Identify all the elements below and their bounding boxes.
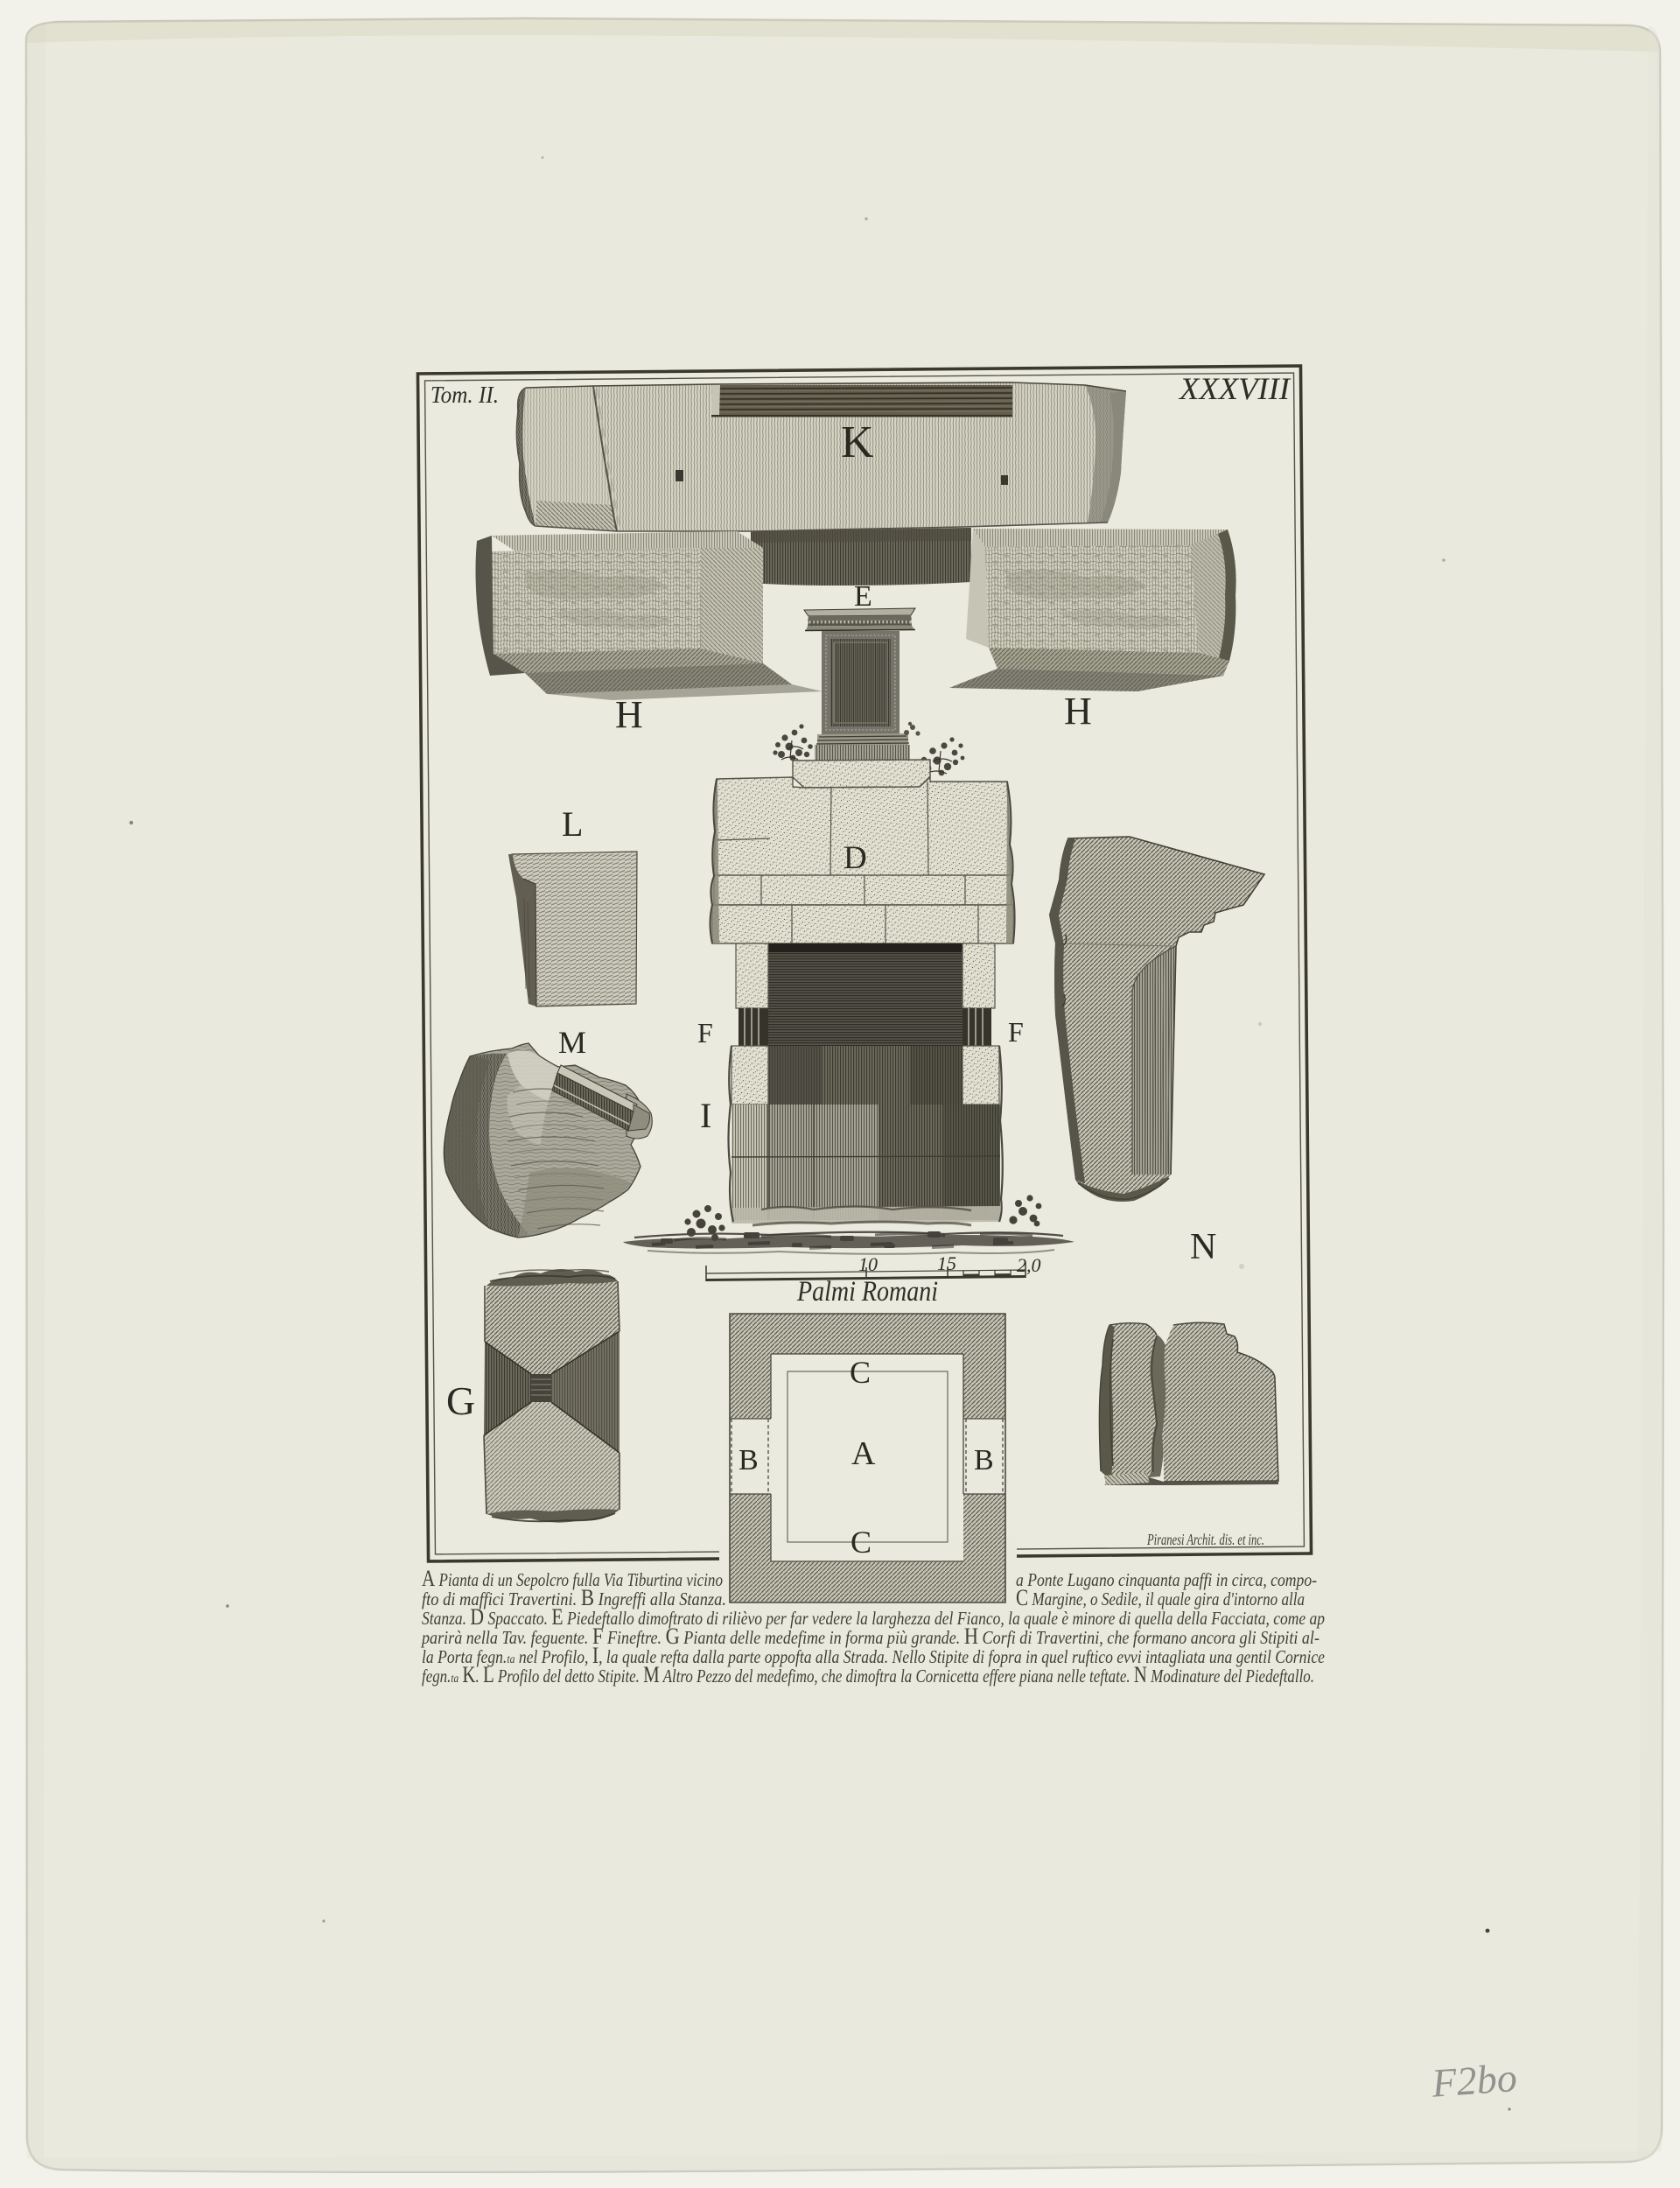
svg-text:F2bo: F2bo <box>1430 2055 1518 2106</box>
svg-text:F: F <box>697 1017 713 1048</box>
svg-text:la Porta fegn.ta nel Profilo,: la Porta fegn.ta nel Profilo, I, la qual… <box>422 1643 1325 1668</box>
svg-text:A: A <box>851 1435 876 1472</box>
svg-text:10: 10 <box>858 1253 878 1275</box>
svg-text:M: M <box>558 1025 586 1060</box>
svg-text:Tom. II.: Tom. II. <box>430 382 499 408</box>
svg-text:L: L <box>562 804 583 844</box>
svg-text:C: C <box>850 1525 871 1560</box>
svg-text:K: K <box>841 417 874 467</box>
svg-text:D: D <box>843 840 867 876</box>
svg-text:C Margine, o Sedile, il quale: C Margine, o Sedile, il quale gira d'int… <box>1016 1585 1305 1610</box>
svg-text:fegn.ta K. L Profilo del detto: fegn.ta K. L Profilo del detto Stipite. … <box>422 1662 1314 1687</box>
svg-text:B: B <box>974 1444 994 1476</box>
svg-text:C: C <box>850 1355 871 1390</box>
svg-text:F: F <box>1008 1016 1024 1048</box>
svg-text:H: H <box>615 693 643 736</box>
svg-text:E: E <box>854 580 872 613</box>
svg-text:parirà nella Tav. feguente. F: parirà nella Tav. feguente. F Fineftre. … <box>420 1623 1319 1649</box>
svg-text:fto di maffici Travertini. B I: fto di maffici Travertini. B Ingreffi al… <box>422 1585 726 1610</box>
svg-text:15: 15 <box>937 1252 956 1274</box>
svg-text:Palmi Romani: Palmi Romani <box>796 1276 938 1308</box>
svg-text:Piranesi Archit. dis. et inc.: Piranesi Archit. dis. et inc. <box>1146 1531 1264 1548</box>
svg-text:H: H <box>1064 690 1092 733</box>
svg-text:A Pianta di un Sepolcro fulla: A Pianta di un Sepolcro fulla Via Tiburt… <box>422 1566 723 1591</box>
svg-text:a Ponte Lugano cinquanta paffi: a Ponte Lugano cinquanta paffi in circa,… <box>1016 1569 1317 1590</box>
svg-text:N: N <box>1190 1227 1216 1267</box>
svg-text:B: B <box>738 1444 759 1476</box>
svg-text:2,0: 2,0 <box>1017 1254 1041 1276</box>
svg-text:G: G <box>446 1378 475 1423</box>
svg-text:I: I <box>700 1096 711 1135</box>
svg-text:Stanza. D Spaccato. E Piedefta: Stanza. D Spaccato. E Piedeftallo dimoft… <box>422 1604 1325 1630</box>
svg-text:XXXVIII: XXXVIII <box>1178 371 1291 406</box>
